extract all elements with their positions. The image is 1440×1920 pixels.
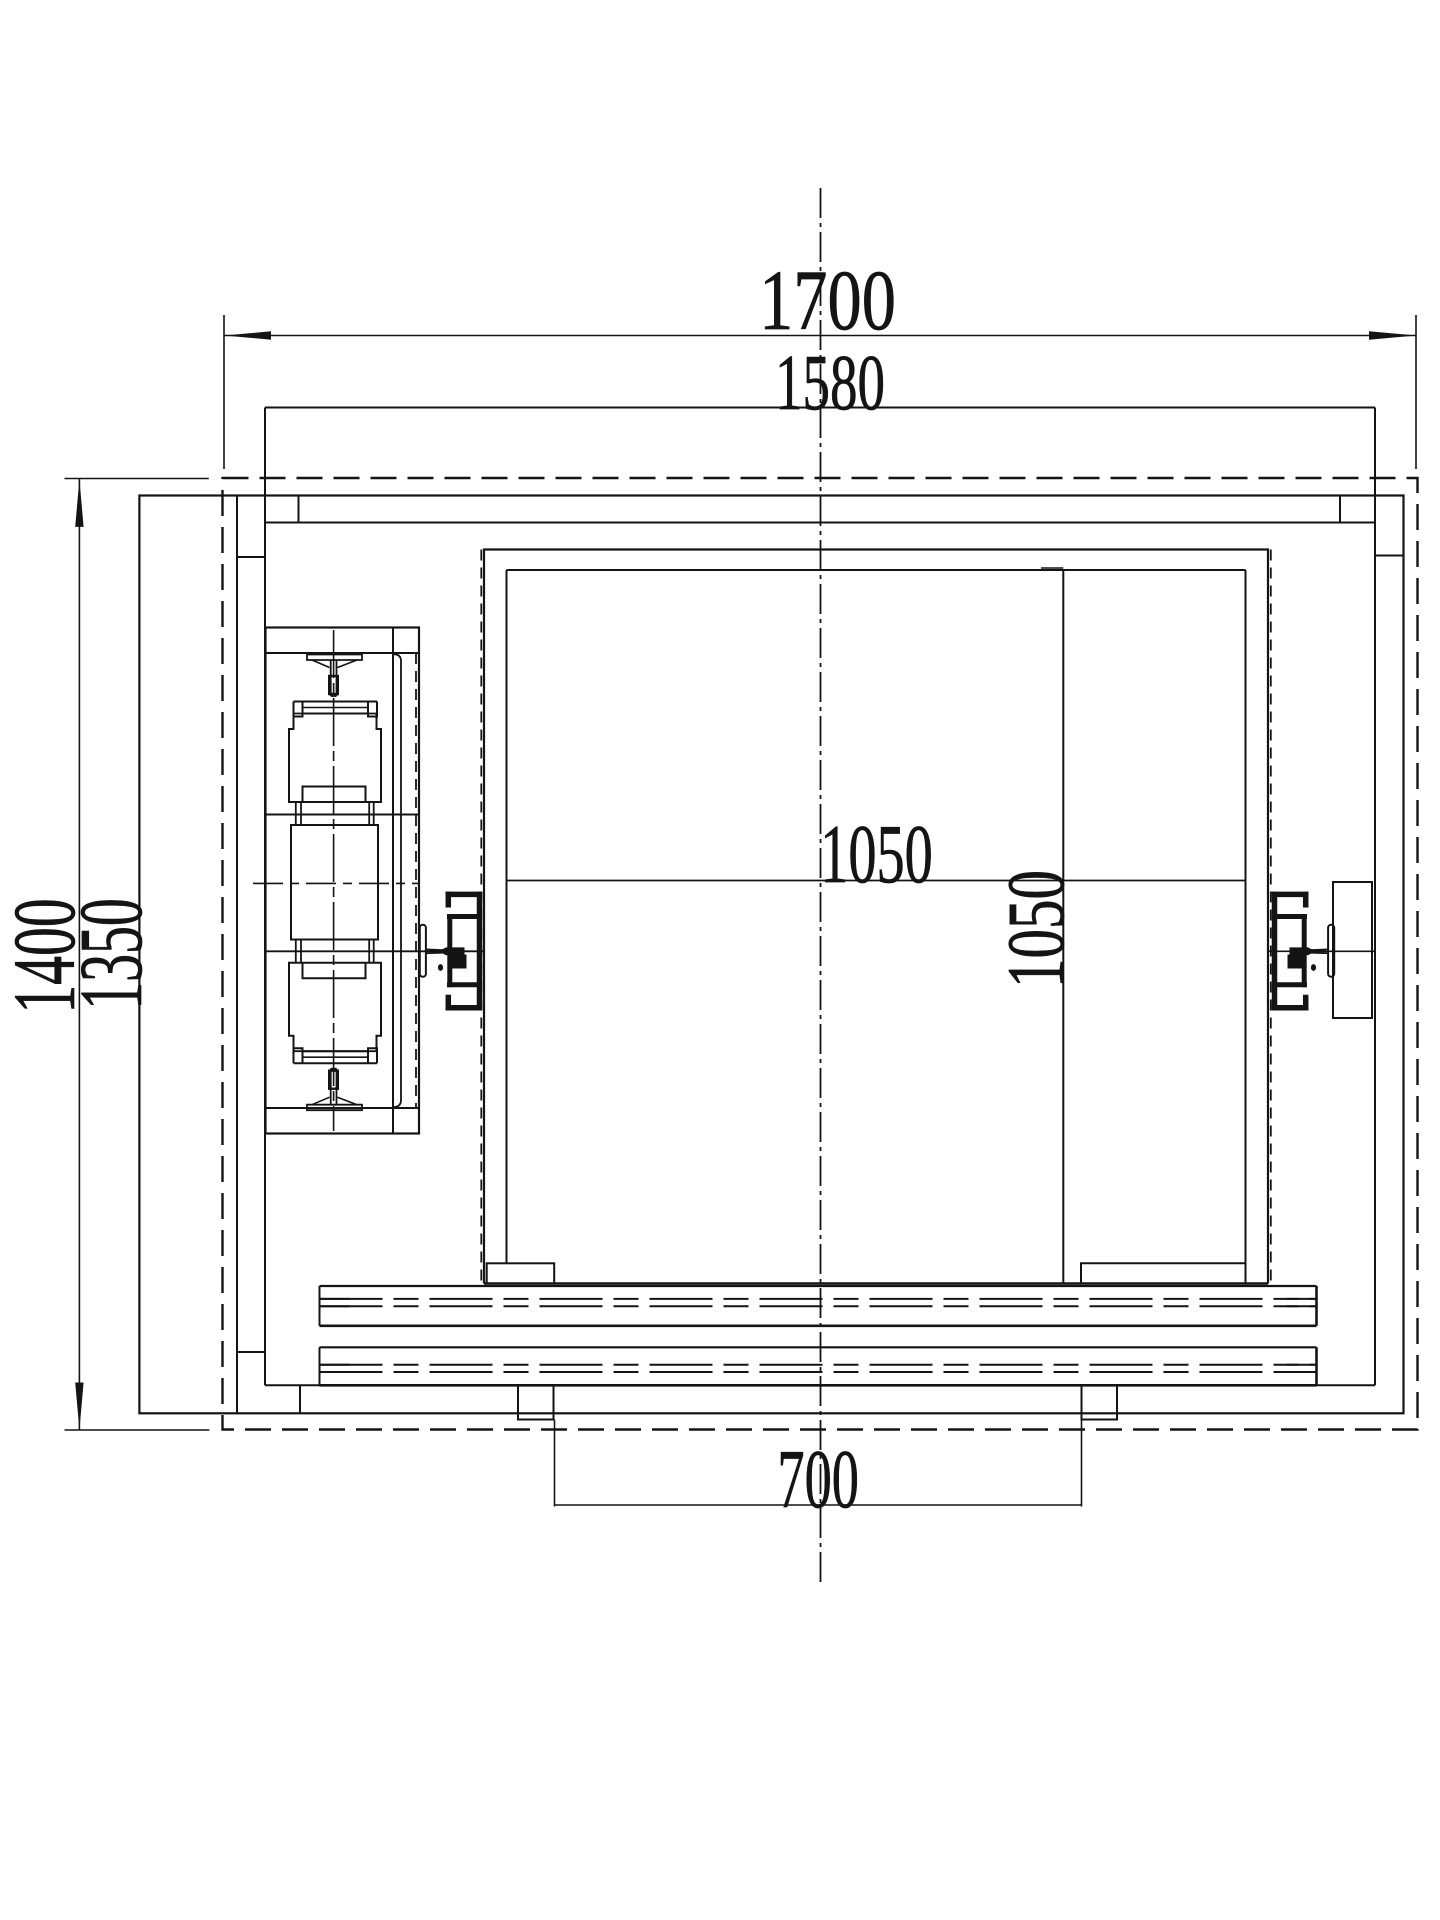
- svg-text:1050: 1050: [991, 870, 1081, 988]
- svg-text:1350: 1350: [62, 898, 161, 1010]
- svg-text:700: 700: [777, 1434, 859, 1526]
- svg-text:1700: 1700: [759, 254, 896, 348]
- svg-text:1580: 1580: [775, 340, 885, 427]
- svg-text:1050: 1050: [820, 809, 933, 901]
